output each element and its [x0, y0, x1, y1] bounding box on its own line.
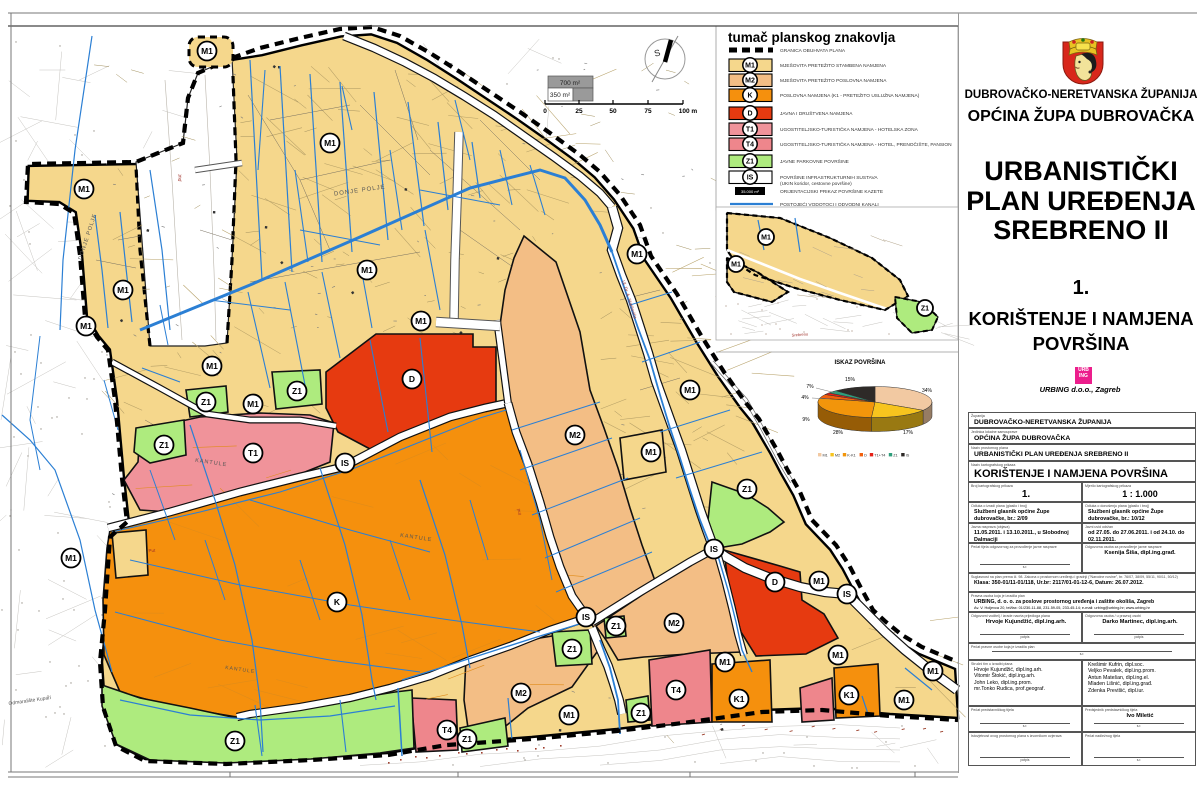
svg-text:T1: T1: [746, 127, 754, 134]
svg-text:IS: IS: [710, 544, 718, 554]
svg-text:Z1: Z1: [230, 736, 240, 746]
svg-text:700 m²: 700 m²: [560, 80, 581, 87]
svg-text:M1: M1: [201, 46, 213, 56]
svg-text:M1: M1: [415, 316, 427, 326]
svg-text:4%: 4%: [801, 395, 809, 401]
svg-text:D: D: [409, 374, 415, 384]
svg-text:Z1: Z1: [746, 159, 754, 166]
svg-text:M1: M1: [645, 447, 657, 457]
svg-text:100 m: 100 m: [679, 108, 698, 115]
svg-text:Z1: Z1: [201, 397, 211, 407]
svg-text:M1: M1: [324, 138, 336, 148]
svg-text:T1: T1: [248, 448, 258, 458]
svg-text:M1: M1: [65, 553, 77, 563]
svg-text:Z1: Z1: [567, 644, 577, 654]
svg-text:15%: 15%: [845, 377, 856, 383]
svg-text:T4: T4: [442, 725, 452, 735]
svg-text:GRANICA OBUHVATA PLANA: GRANICA OBUHVATA PLANA: [780, 48, 846, 54]
svg-text:50: 50: [609, 108, 617, 115]
svg-text:17%: 17%: [903, 430, 914, 436]
svg-text:M1: M1: [731, 262, 741, 269]
svg-text:M2: M2: [515, 688, 527, 698]
svg-text:Z1: Z1: [742, 484, 752, 494]
svg-text:POVRŠINE INFRASTRUKTURNIH SUST: POVRŠINE INFRASTRUKTURNIH SUSTAVA: [780, 174, 878, 181]
svg-text:ORIJENTACIJSKI PRIKAZ POVRŠINE: ORIJENTACIJSKI PRIKAZ POVRŠINE KAZETE: [780, 188, 883, 195]
svg-text:UGOSTITELJSKO-TURISTIČKA NAMJE: UGOSTITELJSKO-TURISTIČKA NAMJENA - HOTEL…: [780, 126, 919, 133]
svg-text:UGOSTITELJSKO-TURISTIČKA NAMJE: UGOSTITELJSKO-TURISTIČKA NAMJENA - HOTEL…: [780, 141, 952, 148]
svg-text:7%: 7%: [806, 384, 814, 390]
svg-text:K: K: [747, 93, 752, 100]
svg-text:M1: M1: [719, 657, 731, 667]
svg-text:M1: M1: [898, 695, 910, 705]
svg-text:Z1: Z1: [292, 386, 302, 396]
svg-text:M1: M1: [78, 184, 90, 194]
svg-text:34%: 34%: [922, 388, 933, 394]
svg-text:Z1: Z1: [611, 621, 621, 631]
svg-text:M1: M1: [823, 454, 828, 458]
svg-text:JAVNA I DRUŠTVENA NAMJENA: JAVNA I DRUŠTVENA NAMJENA: [780, 110, 853, 117]
svg-text:9%: 9%: [802, 417, 810, 423]
svg-text:M1: M1: [247, 399, 259, 409]
svg-text:IS: IS: [747, 175, 754, 182]
svg-text:IS: IS: [341, 458, 349, 468]
svg-text:K: K: [334, 597, 341, 607]
svg-text:T4: T4: [746, 142, 754, 149]
svg-text:350 m²: 350 m²: [550, 92, 571, 99]
svg-text:35.000 m²: 35.000 m²: [741, 189, 760, 194]
svg-text:Z1: Z1: [921, 306, 929, 313]
svg-text:25: 25: [575, 108, 583, 115]
svg-text:JAVNE PARKOVNE POVRŠINE: JAVNE PARKOVNE POVRŠINE: [780, 158, 849, 165]
svg-text:M1: M1: [117, 285, 129, 295]
svg-text:tumač planskog znakovlja: tumač planskog znakovlja: [728, 30, 896, 45]
svg-text:M2: M2: [745, 78, 755, 85]
svg-text:K-K1: K-K1: [847, 454, 855, 458]
svg-text:Odmaralište Kupari: Odmaralište Kupari: [8, 695, 51, 707]
svg-text:D: D: [747, 111, 752, 118]
svg-text:S: S: [653, 47, 661, 58]
svg-text:M1: M1: [813, 576, 825, 586]
svg-text:M2: M2: [569, 430, 581, 440]
svg-text:D: D: [772, 577, 778, 587]
svg-text:ISKAZ POVRŠINA: ISKAZ POVRŠINA: [834, 358, 886, 366]
svg-text:IS: IS: [906, 454, 910, 458]
svg-text:Z1: Z1: [636, 708, 646, 718]
svg-text:M1: M1: [80, 321, 92, 331]
svg-text:M1: M1: [361, 265, 373, 275]
svg-text:M1: M1: [206, 361, 218, 371]
svg-text:M1: M1: [631, 249, 643, 259]
svg-text:K1: K1: [734, 694, 745, 704]
svg-text:K1: K1: [844, 690, 855, 700]
svg-text:28%: 28%: [833, 430, 844, 436]
svg-text:0: 0: [543, 108, 547, 115]
svg-text:Z1: Z1: [159, 440, 169, 450]
svg-text:M1: M1: [927, 666, 939, 676]
svg-text:IS: IS: [582, 612, 590, 622]
svg-text:M1: M1: [832, 650, 844, 660]
svg-text:D: D: [864, 454, 867, 458]
svg-text:Put: Put: [148, 548, 156, 554]
svg-text:(UKIN koridor, cestovne površi: (UKIN koridor, cestovne površine): [780, 181, 852, 187]
svg-text:M2: M2: [668, 618, 680, 628]
svg-text:M1: M1: [745, 63, 755, 70]
svg-text:put: put: [177, 174, 184, 182]
svg-text:Z1: Z1: [462, 734, 472, 744]
svg-text:M2: M2: [835, 454, 840, 458]
svg-text:M1: M1: [761, 235, 771, 242]
svg-text:T1+T4: T1+T4: [874, 454, 885, 458]
svg-text:75: 75: [644, 108, 652, 115]
svg-text:Z1: Z1: [893, 454, 897, 458]
svg-text:T4: T4: [671, 685, 681, 695]
svg-text:M1: M1: [563, 710, 575, 720]
svg-text:IS: IS: [843, 589, 851, 599]
svg-text:M1: M1: [684, 385, 696, 395]
